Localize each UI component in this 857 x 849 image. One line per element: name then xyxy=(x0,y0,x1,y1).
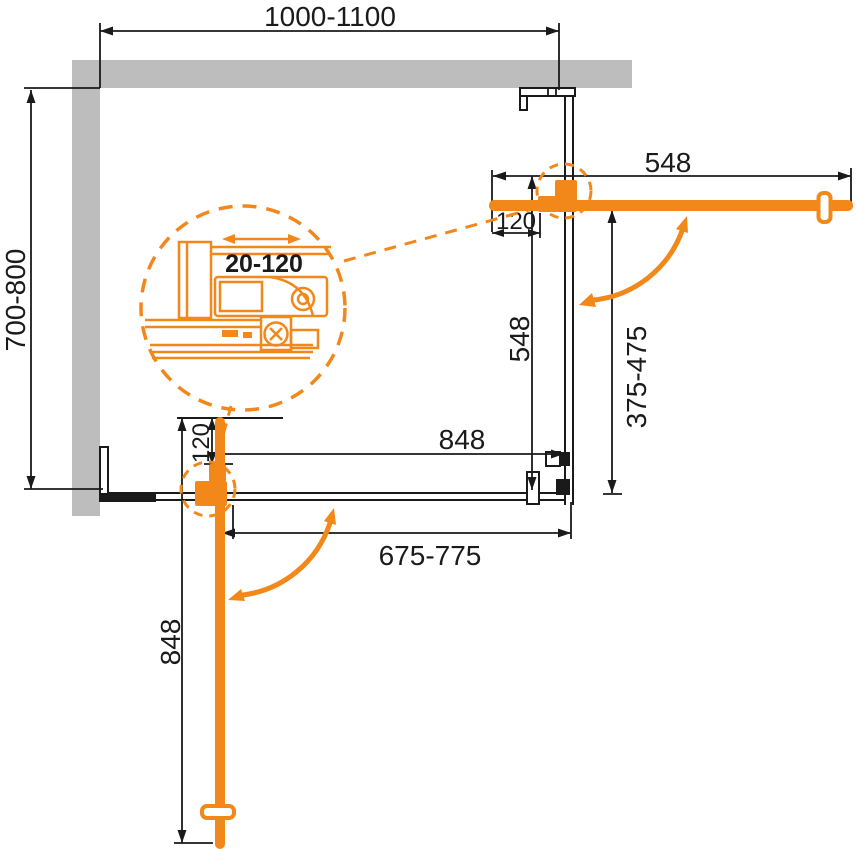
dim-top-width-label: 1000-1100 xyxy=(264,1,396,32)
corner-clamp-bottom xyxy=(527,472,539,504)
dim-bottom-profile-label: 120 xyxy=(188,423,215,463)
arrow-left xyxy=(100,27,113,36)
detail-foot xyxy=(222,330,238,337)
detail-clamp-inner xyxy=(220,282,262,311)
door-right-handle xyxy=(819,193,831,222)
dim-right-panel-range: 375-475 xyxy=(603,209,652,494)
left-wall-bracket xyxy=(100,447,108,494)
fittings xyxy=(99,88,575,504)
dim-right-panel-range-label: 375-475 xyxy=(621,326,652,429)
door-bottom-handle xyxy=(202,806,234,818)
left-wall-bracket-foot xyxy=(99,494,156,502)
door-right-swing-arc xyxy=(594,231,682,300)
door-right-swing-arrowhead-up xyxy=(676,216,688,233)
arrow-down xyxy=(608,480,617,493)
arrow-up xyxy=(27,90,36,103)
door-bottom-swing-arrowhead-up xyxy=(324,508,336,525)
arrow-up xyxy=(178,418,187,431)
door-bottom-leaf xyxy=(215,417,225,849)
detail-circle xyxy=(141,206,345,410)
top-wall-bracket-hook xyxy=(520,96,527,110)
hinge-mechanism-detail: 20-120 xyxy=(145,234,331,358)
adjust-arrow-right xyxy=(288,234,301,244)
arrow-down xyxy=(27,476,36,489)
enclosure-plan-svg: 1000-1100 700-800 548 120 548 xyxy=(0,0,857,849)
detail-knob-outer xyxy=(292,288,314,310)
dim-right-door-width-label: 548 xyxy=(645,147,692,178)
dim-bottom-profile: 120 xyxy=(177,418,283,464)
arrow-left xyxy=(493,172,506,181)
door-bottom-swing-arrowhead-down xyxy=(228,589,245,601)
dim-bottom-panel-range-label: 675-775 xyxy=(379,540,482,571)
dim-left-depth-label: 700-800 xyxy=(0,249,31,352)
door-bottom xyxy=(195,417,336,849)
enclosure-plan-canvas: 1000-1100 700-800 548 120 548 xyxy=(0,0,857,849)
dim-right-door-length-label: 548 xyxy=(504,316,535,363)
corner-joint xyxy=(556,479,570,495)
top-wall xyxy=(72,60,632,88)
walls xyxy=(72,60,632,516)
door-right xyxy=(489,180,853,307)
arrow-right xyxy=(558,529,571,538)
dim-right-door-width: 548 xyxy=(492,147,851,232)
left-wall xyxy=(72,60,100,516)
dim-bottom-door-length-label: 848 xyxy=(155,619,186,666)
arrow-up xyxy=(608,210,617,223)
arrow-right xyxy=(838,172,851,181)
detail-wall-profile xyxy=(179,242,211,318)
door-right-swing-arrowhead-down xyxy=(579,293,596,307)
adjust-arrow-left xyxy=(222,234,235,244)
arrow-right xyxy=(546,27,559,36)
dim-bottom-span-label: 848 xyxy=(439,424,486,455)
dim-bottom-span: 848 xyxy=(212,424,564,459)
fixed-panels xyxy=(103,96,573,505)
arrow-down xyxy=(178,830,187,843)
detail-adjust-range-label: 20-120 xyxy=(225,250,303,278)
detail-foot xyxy=(243,332,252,338)
dim-bottom-panel-range: 675-775 xyxy=(222,502,571,571)
arrow-up xyxy=(528,176,537,189)
